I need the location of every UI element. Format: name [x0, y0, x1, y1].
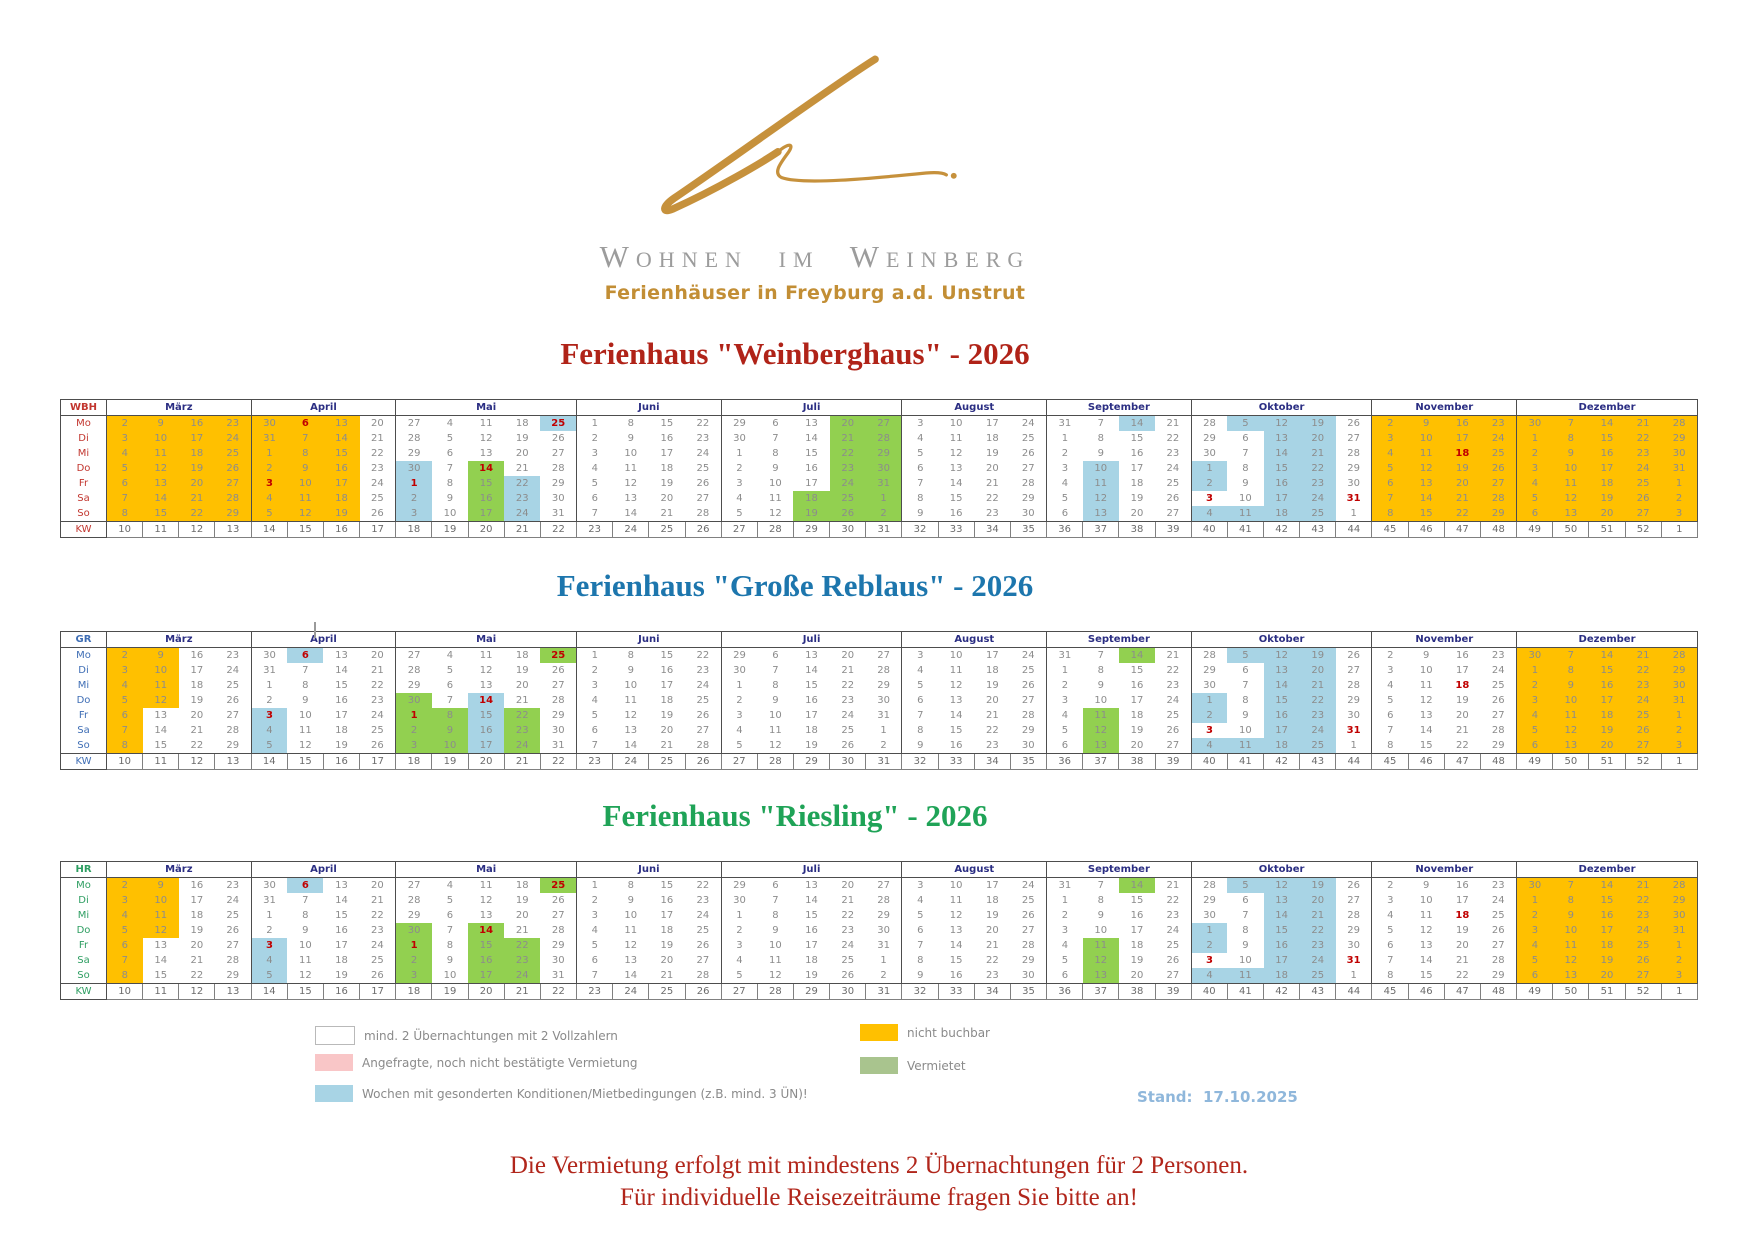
day-cell: 7 [1227, 678, 1263, 693]
day-cell: 1 [1661, 938, 1697, 953]
day-cell: 23 [360, 461, 396, 476]
day-cell: 18 [323, 491, 359, 506]
day-cell: 15 [143, 968, 179, 984]
day-cell: 4 [1191, 968, 1227, 984]
day-cell: 14 [323, 431, 359, 446]
kw-cell: 16 [323, 984, 359, 1000]
day-cell: 4 [1047, 938, 1083, 953]
day-cell: 13 [323, 878, 359, 894]
day-cell: 23 [974, 738, 1010, 754]
kw-cell: 11 [143, 754, 179, 770]
day-cell: 4 [721, 491, 757, 506]
day-cell: 17 [974, 648, 1010, 664]
day-cell: 17 [468, 506, 504, 522]
day-cell: 13 [323, 648, 359, 664]
day-cell: 16 [649, 663, 685, 678]
day-cell: 13 [613, 491, 649, 506]
day-cell: 20 [504, 446, 540, 461]
day-cell: 31 [1661, 461, 1697, 476]
day-cell: 17 [649, 678, 685, 693]
day-cell: 16 [649, 431, 685, 446]
day-cell: 26 [1480, 923, 1516, 938]
day-cell: 7 [1553, 648, 1589, 664]
day-cell: 30 [1191, 446, 1227, 461]
day-cell: 29 [1191, 663, 1227, 678]
day-cell: 15 [323, 446, 359, 461]
day-cell: 21 [179, 953, 215, 968]
day-cell: 1 [1191, 693, 1227, 708]
day-cell: 25 [1480, 678, 1516, 693]
day-cell: 3 [251, 708, 287, 723]
day-cell: 7 [1372, 723, 1408, 738]
day-row-label: Do [61, 461, 107, 476]
day-cell: 19 [1589, 953, 1625, 968]
day-cell: 2 [251, 693, 287, 708]
month-header: Juli [721, 632, 902, 648]
day-cell: 31 [251, 893, 287, 908]
day-cell: 19 [649, 476, 685, 491]
day-cell: 14 [1408, 953, 1444, 968]
day-cell: 20 [1444, 476, 1480, 491]
day-cell: 7 [1227, 446, 1263, 461]
day-cell: 20 [504, 908, 540, 923]
kw-cell: 18 [396, 754, 432, 770]
day-cell: 20 [1444, 708, 1480, 723]
day-cell: 25 [685, 923, 721, 938]
day-cell: 25 [1480, 908, 1516, 923]
day-cell: 29 [396, 678, 432, 693]
day-cell: 16 [1264, 476, 1300, 491]
day-cell: 18 [1264, 506, 1300, 522]
day-cell: 24 [360, 708, 396, 723]
day-cell: 14 [1119, 416, 1155, 432]
day-cell: 21 [974, 938, 1010, 953]
day-cell: 1 [577, 648, 613, 664]
day-cell: 3 [1191, 491, 1227, 506]
day-cell: 16 [1589, 908, 1625, 923]
month-header: Dezember [1517, 632, 1698, 648]
kw-cell: 39 [1155, 984, 1191, 1000]
day-cell: 7 [1553, 416, 1589, 432]
day-cell: 7 [432, 923, 468, 938]
day-cell: 6 [1372, 476, 1408, 491]
day-cell: 30 [721, 663, 757, 678]
kw-cell: 14 [251, 984, 287, 1000]
day-cell: 16 [179, 878, 215, 894]
day-cell: 14 [1264, 446, 1300, 461]
day-cell: 21 [830, 431, 866, 446]
day-cell: 2 [251, 461, 287, 476]
day-cell: 25 [1300, 506, 1336, 522]
day-cell: 25 [1155, 938, 1191, 953]
day-cell: 16 [938, 968, 974, 984]
day-cell: 8 [287, 678, 323, 693]
day-cell: 3 [251, 938, 287, 953]
day-cell: 22 [685, 878, 721, 894]
day-cell: 7 [1083, 878, 1119, 894]
month-header: Oktober [1191, 400, 1372, 416]
day-cell: 23 [504, 723, 540, 738]
legend-label: Wochen mit gesonderten Konditionen/Mietb… [362, 1087, 808, 1101]
day-cell: 24 [830, 708, 866, 723]
day-cell: 9 [432, 953, 468, 968]
day-cell: 11 [1408, 678, 1444, 693]
day-cell: 10 [757, 708, 793, 723]
day-cell: 10 [1408, 663, 1444, 678]
day-cell: 21 [830, 893, 866, 908]
day-cell: 26 [540, 431, 576, 446]
day-cell: 16 [323, 461, 359, 476]
day-cell: 24 [1625, 923, 1661, 938]
day-cell: 7 [287, 431, 323, 446]
day-cell: 29 [1480, 968, 1516, 984]
day-cell: 28 [540, 693, 576, 708]
day-cell: 4 [1372, 678, 1408, 693]
day-row-label: So [61, 968, 107, 984]
month-header: April [251, 400, 396, 416]
day-cell: 25 [1010, 893, 1046, 908]
day-cell: 25 [360, 953, 396, 968]
day-cell: 16 [468, 953, 504, 968]
day-cell: 11 [1553, 938, 1589, 953]
day-cell: 22 [1625, 893, 1661, 908]
day-cell: 9 [613, 431, 649, 446]
day-cell: 5 [107, 923, 143, 938]
day-cell: 18 [323, 723, 359, 738]
kw-cell: 33 [938, 522, 974, 538]
day-cell: 18 [1119, 708, 1155, 723]
kw-cell: 19 [432, 984, 468, 1000]
day-cell: 15 [1264, 461, 1300, 476]
day-cell: 7 [757, 431, 793, 446]
day-cell: 7 [902, 476, 938, 491]
day-cell: 19 [974, 908, 1010, 923]
day-cell: 27 [1155, 738, 1191, 754]
kw-cell: 23 [577, 984, 613, 1000]
day-cell: 24 [1480, 893, 1516, 908]
kw-cell: 15 [287, 984, 323, 1000]
day-cell: 8 [1372, 506, 1408, 522]
day-cell: 1 [396, 476, 432, 491]
kw-row-label: KW [61, 522, 107, 538]
day-cell: 18 [504, 648, 540, 664]
kw-cell: 25 [649, 984, 685, 1000]
month-header: Oktober [1191, 862, 1372, 878]
day-cell: 2 [577, 431, 613, 446]
day-cell: 29 [215, 968, 251, 984]
day-cell: 28 [396, 431, 432, 446]
day-cell: 8 [432, 938, 468, 953]
kw-cell: 42 [1264, 754, 1300, 770]
day-cell: 8 [287, 446, 323, 461]
day-cell: 26 [1010, 446, 1046, 461]
day-cell: 9 [613, 893, 649, 908]
kw-cell: 47 [1444, 984, 1480, 1000]
day-cell: 23 [1625, 908, 1661, 923]
day-cell: 25 [1010, 431, 1046, 446]
month-header: August [902, 862, 1047, 878]
kw-cell: 47 [1444, 754, 1480, 770]
day-cell: 14 [468, 693, 504, 708]
day-cell: 1 [251, 678, 287, 693]
day-cell: 1 [1191, 461, 1227, 476]
day-cell: 9 [143, 648, 179, 664]
day-cell: 12 [1083, 723, 1119, 738]
day-cell: 22 [1625, 431, 1661, 446]
day-cell: 19 [1119, 953, 1155, 968]
day-cell: 30 [1661, 908, 1697, 923]
day-cell: 18 [1444, 678, 1480, 693]
day-cell: 30 [1191, 678, 1227, 693]
day-cell: 19 [1444, 923, 1480, 938]
day-cell: 21 [504, 923, 540, 938]
day-cell: 14 [938, 938, 974, 953]
day-cell: 15 [468, 708, 504, 723]
day-cell: 16 [179, 648, 215, 664]
day-cell: 15 [143, 738, 179, 754]
day-cell: 22 [179, 506, 215, 522]
day-cell: 30 [396, 461, 432, 476]
day-cell: 19 [504, 663, 540, 678]
day-cell: 28 [685, 506, 721, 522]
day-cell: 17 [974, 416, 1010, 432]
day-cell: 8 [757, 446, 793, 461]
day-cell: 29 [1661, 893, 1697, 908]
day-cell: 1 [1047, 663, 1083, 678]
day-cell: 2 [1661, 491, 1697, 506]
day-cell: 10 [287, 476, 323, 491]
day-cell: 24 [215, 893, 251, 908]
day-cell: 29 [1336, 461, 1372, 476]
day-cell: 3 [396, 506, 432, 522]
day-cell: 30 [251, 878, 287, 894]
day-cell: 7 [1083, 416, 1119, 432]
day-cell: 11 [613, 461, 649, 476]
day-cell: 29 [1480, 506, 1516, 522]
day-cell: 30 [1517, 648, 1553, 664]
kw-cell: 11 [143, 522, 179, 538]
kw-cell: 47 [1444, 522, 1480, 538]
day-cell: 28 [866, 663, 902, 678]
day-cell: 2 [1517, 446, 1553, 461]
day-row-label: So [61, 506, 107, 522]
day-cell: 11 [757, 953, 793, 968]
day-cell: 26 [1155, 723, 1191, 738]
day-cell: 28 [1191, 416, 1227, 432]
day-cell: 1 [1047, 431, 1083, 446]
day-cell: 2 [1372, 416, 1408, 432]
kw-cell: 52 [1625, 754, 1661, 770]
legend-label: nicht buchbar [907, 1026, 990, 1040]
day-cell: 4 [1047, 708, 1083, 723]
day-cell: 15 [1119, 893, 1155, 908]
day-cell: 6 [757, 416, 793, 432]
day-cell: 29 [1191, 893, 1227, 908]
kw-cell: 30 [830, 984, 866, 1000]
day-cell: 28 [1010, 476, 1046, 491]
kw-cell: 28 [757, 754, 793, 770]
day-cell: 27 [396, 416, 432, 432]
kw-cell: 22 [540, 522, 576, 538]
day-cell: 9 [757, 923, 793, 938]
day-cell: 4 [577, 693, 613, 708]
day-cell: 2 [1191, 938, 1227, 953]
kw-cell: 10 [107, 984, 143, 1000]
kw-cell: 51 [1589, 984, 1625, 1000]
kw-cell: 12 [179, 984, 215, 1000]
day-cell: 28 [1480, 723, 1516, 738]
day-cell: 18 [179, 678, 215, 693]
day-cell: 10 [143, 663, 179, 678]
day-cell: 20 [1300, 893, 1336, 908]
day-cell: 19 [323, 738, 359, 754]
day-cell: 16 [1589, 446, 1625, 461]
day-cell: 15 [468, 938, 504, 953]
day-cell: 19 [793, 738, 829, 754]
day-cell: 27 [1155, 968, 1191, 984]
day-cell: 4 [902, 663, 938, 678]
day-cell: 14 [1408, 491, 1444, 506]
day-cell: 5 [721, 968, 757, 984]
day-cell: 4 [902, 893, 938, 908]
day-cell: 27 [540, 908, 576, 923]
day-cell: 12 [938, 908, 974, 923]
month-header: April [251, 862, 396, 878]
day-row-label: Fr [61, 708, 107, 723]
kw-cell: 20 [468, 984, 504, 1000]
day-cell: 20 [974, 461, 1010, 476]
day-cell: 25 [360, 723, 396, 738]
day-cell: 14 [323, 893, 359, 908]
day-cell: 3 [902, 416, 938, 432]
day-cell: 25 [685, 461, 721, 476]
day-cell: 10 [613, 678, 649, 693]
kw-cell: 23 [577, 754, 613, 770]
day-cell: 5 [107, 693, 143, 708]
day-cell: 26 [1010, 678, 1046, 693]
day-cell: 27 [1010, 923, 1046, 938]
day-cell: 12 [287, 968, 323, 984]
day-cell: 26 [215, 461, 251, 476]
day-cell: 23 [504, 953, 540, 968]
kw-cell: 33 [938, 984, 974, 1000]
day-cell: 23 [1300, 708, 1336, 723]
day-cell: 12 [938, 446, 974, 461]
day-cell: 29 [540, 476, 576, 491]
day-cell: 3 [1517, 693, 1553, 708]
day-cell: 23 [830, 923, 866, 938]
day-cell: 4 [107, 446, 143, 461]
day-cell: 5 [107, 461, 143, 476]
day-cell: 16 [1589, 678, 1625, 693]
day-cell: 29 [1010, 953, 1046, 968]
day-cell: 3 [1517, 923, 1553, 938]
day-cell: 30 [1517, 416, 1553, 432]
day-cell: 14 [468, 923, 504, 938]
kw-cell: 10 [107, 522, 143, 538]
day-cell: 4 [432, 416, 468, 432]
day-cell: 20 [1589, 738, 1625, 754]
day-cell: 6 [432, 446, 468, 461]
day-cell: 3 [1661, 738, 1697, 754]
kw-cell: 12 [179, 522, 215, 538]
day-cell: 28 [1480, 491, 1516, 506]
kw-cell: 13 [215, 984, 251, 1000]
day-cell: 21 [360, 431, 396, 446]
day-cell: 8 [757, 908, 793, 923]
day-cell: 13 [1408, 938, 1444, 953]
day-cell: 20 [974, 923, 1010, 938]
day-cell: 14 [1589, 648, 1625, 664]
stand-date: Stand: 17.10.2025 [1137, 1088, 1298, 1106]
month-header: März [107, 400, 252, 416]
day-cell: 2 [866, 968, 902, 984]
day-cell: 14 [1264, 678, 1300, 693]
day-cell: 13 [1083, 738, 1119, 754]
day-cell: 20 [179, 708, 215, 723]
day-cell: 1 [577, 416, 613, 432]
day-cell: 25 [685, 693, 721, 708]
day-cell: 1 [721, 678, 757, 693]
day-cell: 22 [1625, 663, 1661, 678]
day-cell: 9 [1227, 708, 1263, 723]
day-cell: 12 [1083, 491, 1119, 506]
day-cell: 24 [1300, 491, 1336, 506]
day-cell: 25 [540, 648, 576, 664]
day-cell: 29 [721, 416, 757, 432]
calendar-weinberghaus: WBHMärzAprilMaiJuniJuliAugustSeptemberOk… [60, 399, 1698, 538]
day-cell: 5 [1227, 416, 1263, 432]
day-cell: 6 [287, 648, 323, 664]
day-cell: 30 [540, 723, 576, 738]
kw-cell: 26 [685, 522, 721, 538]
day-cell: 29 [215, 738, 251, 754]
kw-cell: 24 [613, 984, 649, 1000]
day-cell: 26 [540, 893, 576, 908]
day-cell: 9 [432, 723, 468, 738]
day-row-label: Fr [61, 476, 107, 491]
day-cell: 9 [1227, 476, 1263, 491]
day-cell: 28 [215, 953, 251, 968]
day-cell: 21 [360, 893, 396, 908]
day-cell: 6 [1517, 506, 1553, 522]
day-cell: 14 [143, 953, 179, 968]
legend-swatch-green [860, 1057, 898, 1074]
day-cell: 7 [577, 968, 613, 984]
day-cell: 17 [468, 968, 504, 984]
day-cell: 27 [396, 878, 432, 894]
kw-cell: 17 [360, 522, 396, 538]
day-cell: 2 [107, 416, 143, 432]
day-cell: 17 [179, 431, 215, 446]
kw-cell: 32 [902, 754, 938, 770]
day-cell: 6 [1372, 938, 1408, 953]
kw-cell: 46 [1408, 754, 1444, 770]
day-cell: 24 [1010, 416, 1046, 432]
month-header: Dezember [1517, 400, 1698, 416]
day-cell: 11 [1083, 476, 1119, 491]
day-cell: 13 [1408, 476, 1444, 491]
kw-cell: 16 [323, 522, 359, 538]
day-cell: 18 [1119, 938, 1155, 953]
day-cell: 16 [793, 461, 829, 476]
day-cell: 13 [793, 648, 829, 664]
day-cell: 30 [866, 461, 902, 476]
day-cell: 4 [577, 923, 613, 938]
day-cell: 22 [179, 968, 215, 984]
day-cell: 17 [1589, 923, 1625, 938]
day-cell: 1 [1517, 663, 1553, 678]
